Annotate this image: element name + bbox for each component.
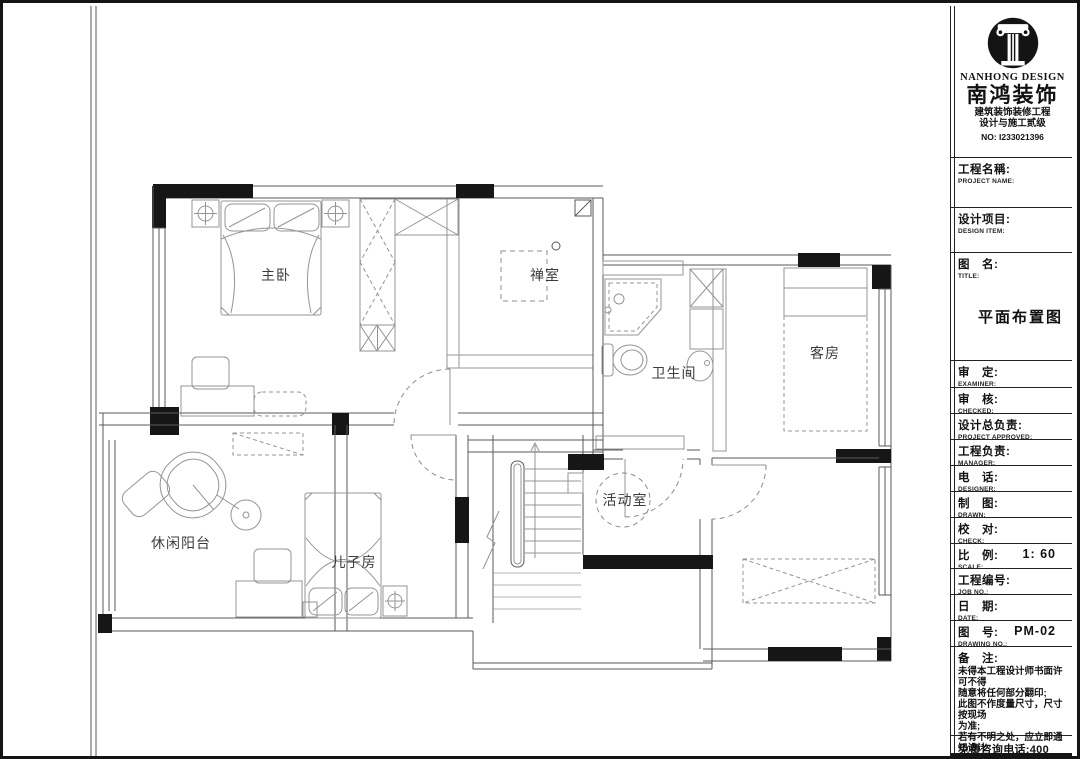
brand-name-cn: 南鸿装饰 <box>958 83 1067 107</box>
field-label-en: PROJECT NAME: <box>958 178 1067 185</box>
field-label-cn: 审 定: <box>958 364 1067 380</box>
field-drawn: 制 图: DRAWN: <box>951 492 1072 518</box>
field-label-cn: 设计项目: <box>958 211 1067 227</box>
field-scale: 比 例: SCALE: 1: 60 <box>951 544 1072 569</box>
master-desk <box>181 357 306 416</box>
field-label-en: TITLE: <box>958 273 1067 280</box>
field-label-cn: 审 核: <box>958 391 1067 407</box>
balcony-furniture <box>119 440 261 530</box>
note-line: 此图不作度量尺寸，尺寸按现场 <box>958 699 1067 721</box>
room-label-meditation: 禅室 <box>530 267 560 283</box>
phone-row: 免费咨询电话:400 8383 168 <box>951 736 1072 759</box>
floorplan-drawing: .w{stroke:#5a5a5a;stroke-width:1;fill:no… <box>6 6 956 759</box>
notes-section: 备 注: 未得本工程设计师书面许可不得 随意将任何部分翻印; 此图不作度量尺寸，… <box>951 647 1072 736</box>
notes-label: 备 注: <box>958 650 1067 666</box>
field-label-cn: 工程编号: <box>958 572 1067 588</box>
title-block: NANHONG DESIGN 南鸿装饰 建筑装饰装修工程 设计与施工贰级 NO:… <box>950 6 1072 759</box>
drawing-no-value: PM-02 <box>1014 624 1056 638</box>
field-label-cn: 制 图: <box>958 495 1067 511</box>
brand-tagline-1: 建筑装饰装修工程 <box>958 107 1067 118</box>
room-label-master: 主卧 <box>261 267 291 283</box>
brand-tagline-2: 设计与施工贰级 <box>958 118 1067 129</box>
field-manager: 工程负责: MANAGER: <box>951 440 1072 466</box>
field-date: 日 期: DATE: <box>951 595 1072 621</box>
company-header: NANHONG DESIGN 南鸿装饰 建筑装饰装修工程 设计与施工贰级 NO:… <box>951 6 1072 158</box>
field-check: 校 对: CHECK: <box>951 518 1072 544</box>
drawing-sheet: .w{stroke:#5a5a5a;stroke-width:1;fill:no… <box>0 0 1080 759</box>
field-label-cn: 电 话: <box>958 469 1067 485</box>
field-design-item: 设计项目: DESIGN ITEM: <box>951 208 1072 253</box>
master-wardrobe <box>360 199 458 351</box>
field-label-cn: 工程名稱: <box>958 161 1067 177</box>
master-door <box>394 369 450 425</box>
field-job-no: 工程编号: JOB NO.: <box>951 569 1072 595</box>
room-label-bathroom: 卫生间 <box>652 365 697 381</box>
field-label-cn: 校 对: <box>958 521 1067 537</box>
son-furniture <box>233 433 456 618</box>
company-logo-icon <box>986 16 1040 70</box>
field-label-cn: 图 名: <box>958 256 1067 272</box>
room-label-son: 儿子房 <box>332 554 377 570</box>
inner-frame <box>91 6 96 759</box>
field-designer-phone: 电 话: DESIGNER: <box>951 466 1072 492</box>
staircase <box>483 435 604 623</box>
field-label-en: DESIGN ITEM: <box>958 228 1067 235</box>
room-label-balcony: 休闲阳台 <box>151 535 211 551</box>
brand-name-en: NANHONG DESIGN <box>958 72 1067 83</box>
brand-cert-no: NO: I233021396 <box>958 132 1067 142</box>
field-label-cn: 设计总负责: <box>958 417 1067 433</box>
field-label-cn: 工程负责: <box>958 443 1067 459</box>
room-label-guest: 客房 <box>810 345 840 361</box>
field-label-cn: 日 期: <box>958 598 1067 614</box>
field-checked: 审 核: CHECKED: <box>951 388 1072 414</box>
field-label-en: EXAMINER: <box>958 381 1067 388</box>
note-line: 随意将任何部分翻印; <box>958 688 1067 699</box>
scale-value: 1: 60 <box>1023 547 1057 561</box>
guest-desk <box>743 559 875 603</box>
note-line: 为准; <box>958 721 1067 732</box>
walls <box>98 184 891 669</box>
guest-door <box>712 465 766 519</box>
field-examiner: 审 定: EXAMINER: <box>951 361 1072 388</box>
service-phone: 免费咨询电话:400 8383 168 <box>958 739 1067 759</box>
field-drawing-no: 图 号: DRAWING NO.: PM-02 <box>951 621 1072 647</box>
note-line: 未得本工程设计师书面许可不得 <box>958 666 1067 688</box>
master-bed <box>221 201 321 315</box>
room-label-activity: 活动室 <box>603 492 648 508</box>
field-project-approved: 设计总负责: PROJECT APPROVED: <box>951 414 1072 440</box>
field-drawing-title: 图 名: TITLE: 平面布置图 <box>951 253 1072 361</box>
field-project-name: 工程名稱: PROJECT NAME: <box>951 158 1072 208</box>
bathroom-fixtures <box>596 261 726 517</box>
drawing-title-value: 平面布置图 <box>958 306 1067 327</box>
